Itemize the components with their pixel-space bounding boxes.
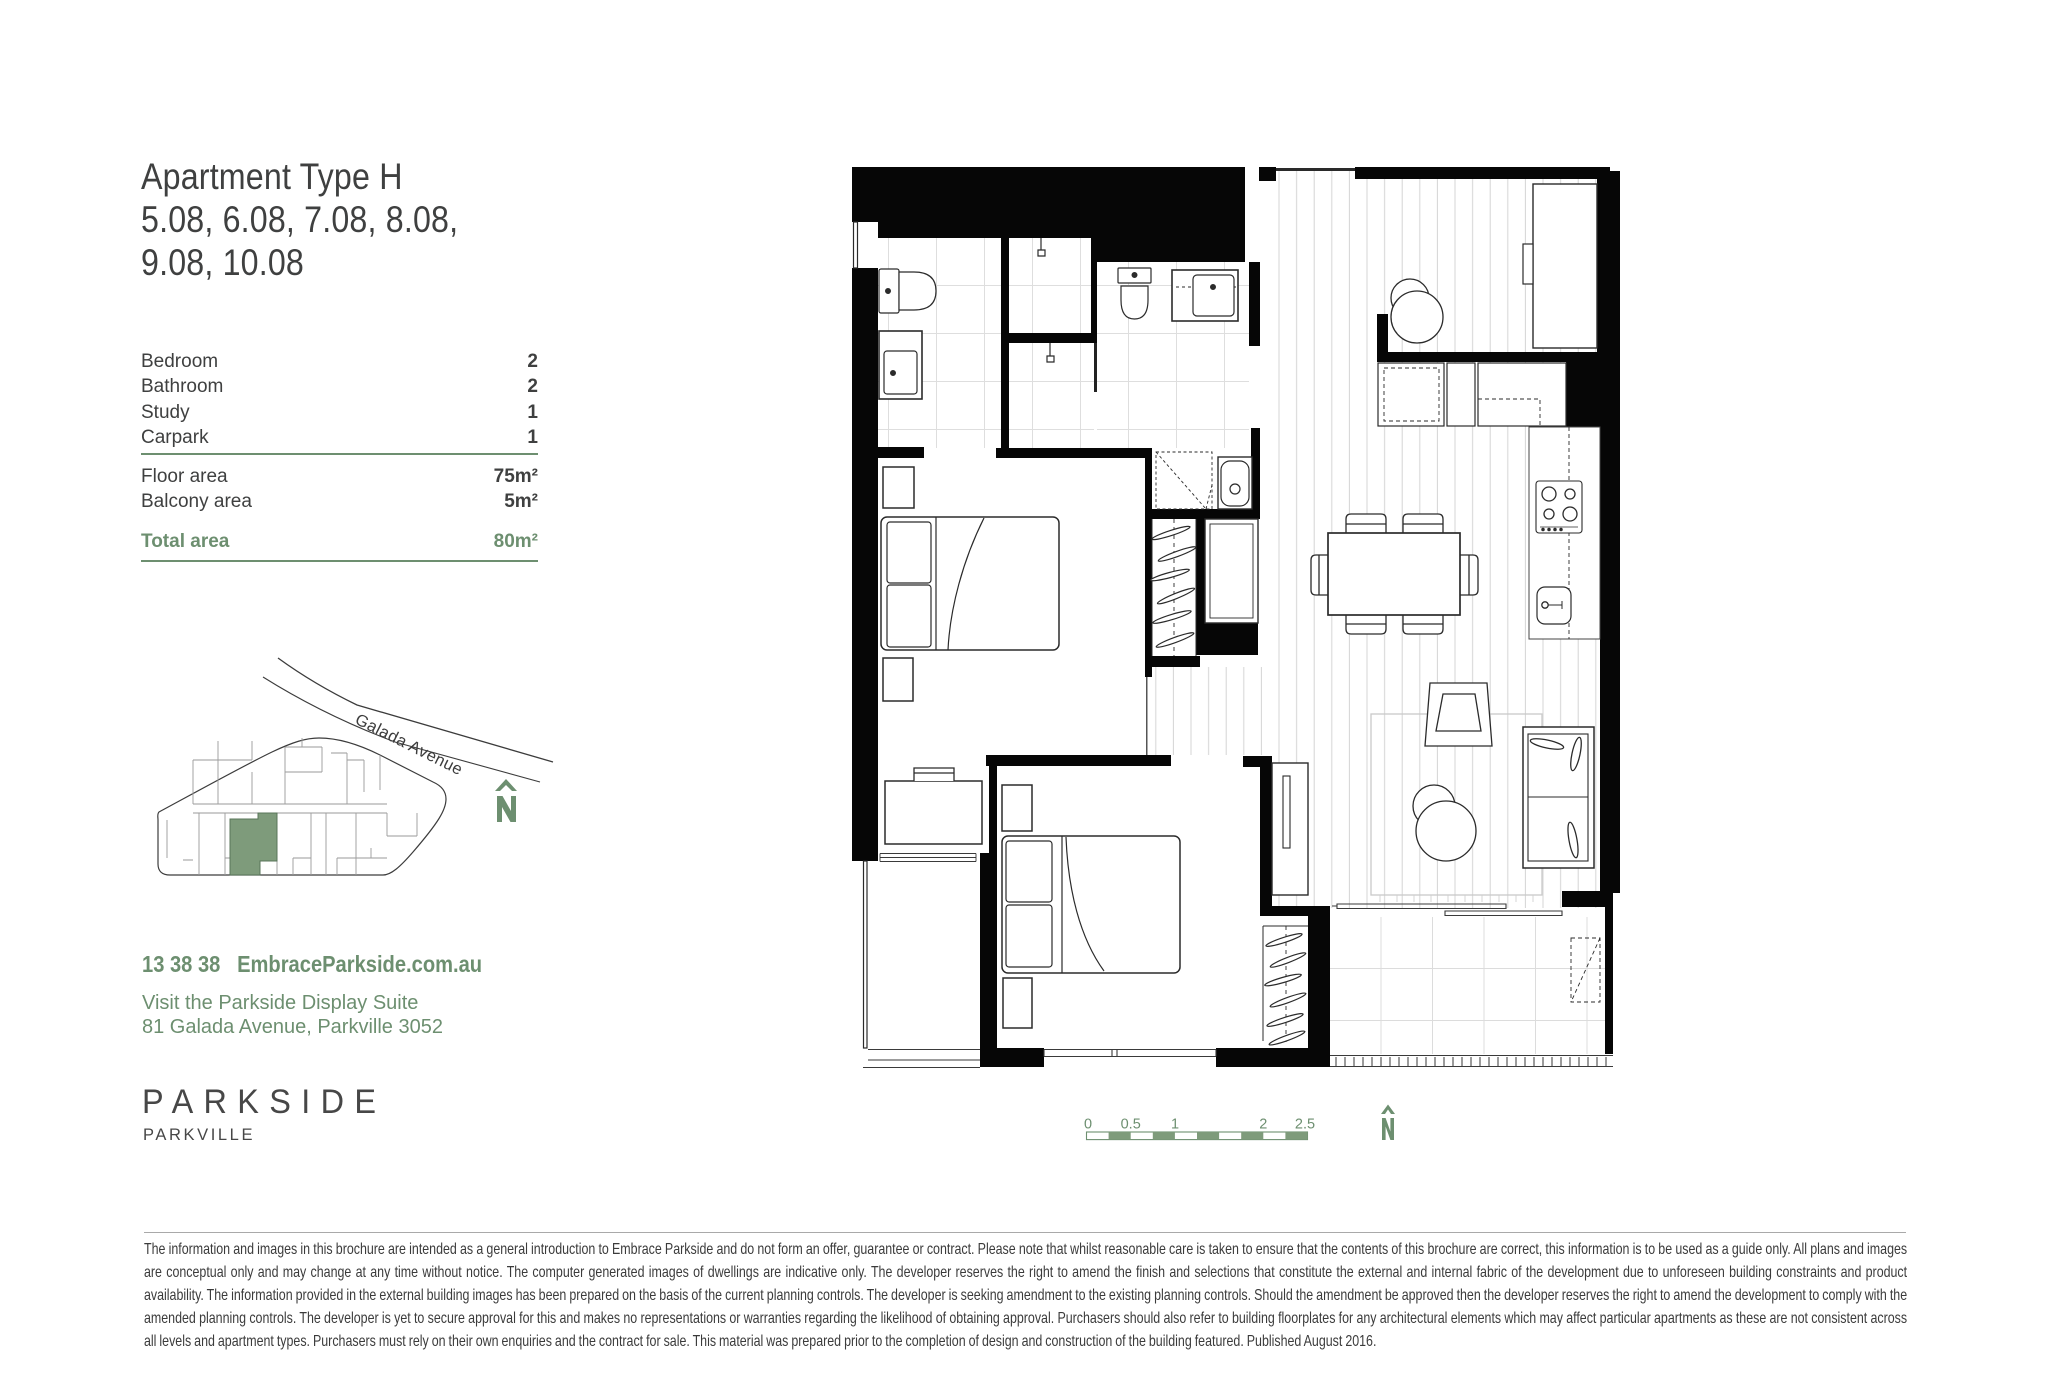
svg-text:2: 2 bbox=[1259, 1117, 1267, 1133]
svg-text:0.5: 0.5 bbox=[1121, 1117, 1141, 1133]
svg-text:0: 0 bbox=[1084, 1117, 1092, 1133]
svg-text:1: 1 bbox=[1171, 1117, 1179, 1133]
svg-text:2.5: 2.5 bbox=[1295, 1117, 1315, 1133]
